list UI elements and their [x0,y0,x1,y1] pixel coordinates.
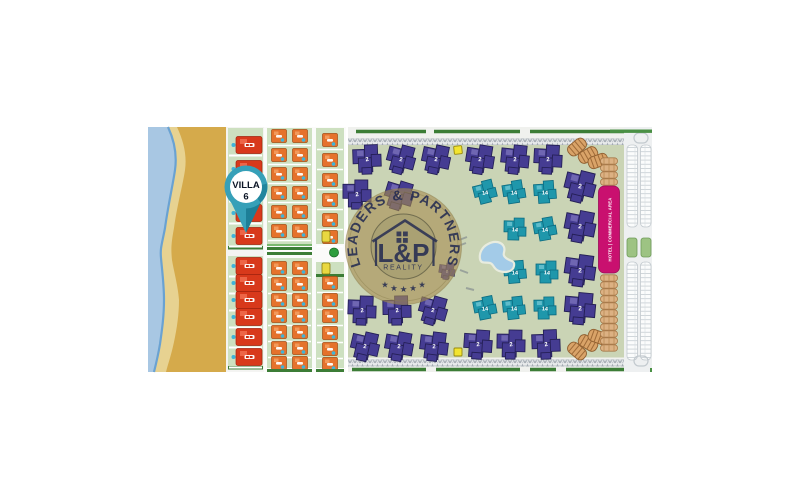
svg-text:L&P: L&P [378,238,430,268]
svg-text:★: ★ [409,283,417,293]
svg-text:★: ★ [418,280,426,290]
svg-text:VILLA: VILLA [232,180,260,191]
svg-text:HOTEL | COMMERCIAL AREA: HOTEL | COMMERCIAL AREA [608,198,613,262]
svg-text:★: ★ [400,284,408,294]
svg-text:★: ★ [381,280,389,290]
svg-text:REALITY: REALITY [383,265,423,272]
svg-text:★: ★ [390,283,398,293]
svg-text:6: 6 [243,192,248,203]
